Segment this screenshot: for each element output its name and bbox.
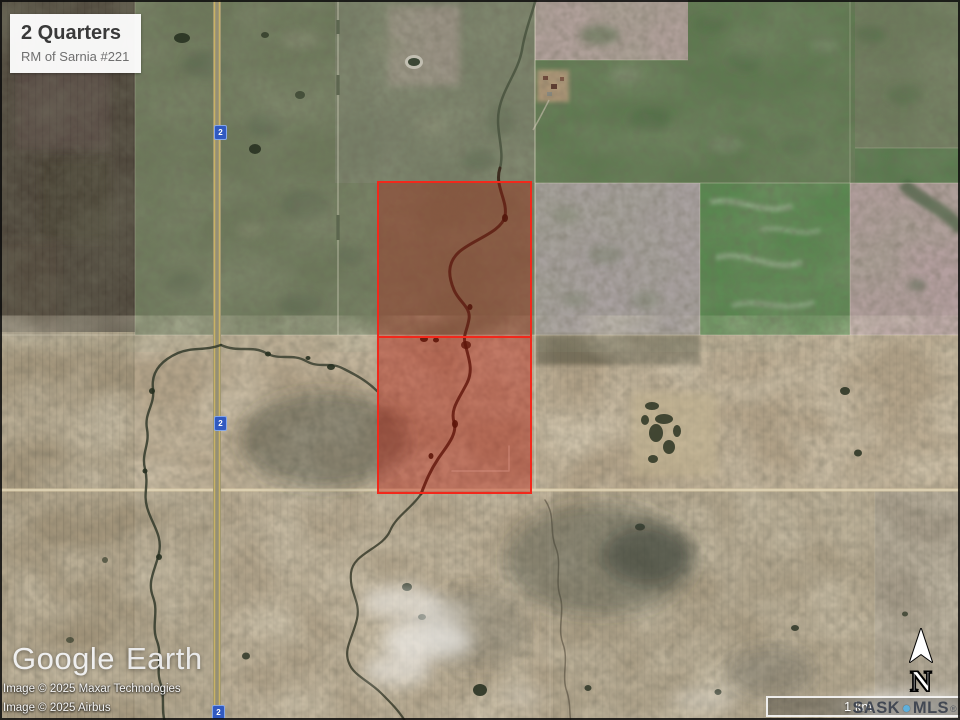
listing-title: 2 Quarters [21, 23, 129, 44]
highway-2-road [213, 0, 221, 720]
watermark-sask-text: SASK [852, 699, 899, 718]
map-canvas[interactable]: 2 2 2 2 Quarters RM of Sarnia #221 Googl… [0, 0, 960, 720]
imagery-credit-maxar: Image © 2025 Maxar Technologies [3, 683, 181, 695]
watermark-mls-text: MLS [913, 699, 949, 718]
north-label: N [898, 667, 944, 697]
parcel-quarter-south [379, 338, 530, 492]
mls-dot-icon [903, 705, 910, 712]
parcel-boundary-overlay [377, 181, 532, 494]
parcel-quarter-north [379, 183, 530, 336]
wetland-cluster [632, 392, 717, 477]
north-arrow-icon [898, 626, 944, 666]
logo-earth-text: Earth [126, 641, 203, 676]
google-earth-logo: GoogleEarth [12, 641, 203, 677]
highway-shield-icon: 2 [214, 125, 227, 140]
highway-shield-icon: 2 [212, 705, 225, 720]
sask-mls-watermark: SASK MLS ® [852, 699, 957, 718]
listing-label-card: 2 Quarters RM of Sarnia #221 [10, 14, 141, 73]
logo-google-text: Google [12, 641, 115, 676]
listing-municipality: RM of Sarnia #221 [21, 50, 129, 63]
compass: N [898, 626, 944, 697]
highway-shield-icon: 2 [214, 416, 227, 431]
registered-trademark-symbol: ® [950, 704, 957, 714]
imagery-credit-airbus: Image © 2025 Airbus [3, 702, 111, 714]
